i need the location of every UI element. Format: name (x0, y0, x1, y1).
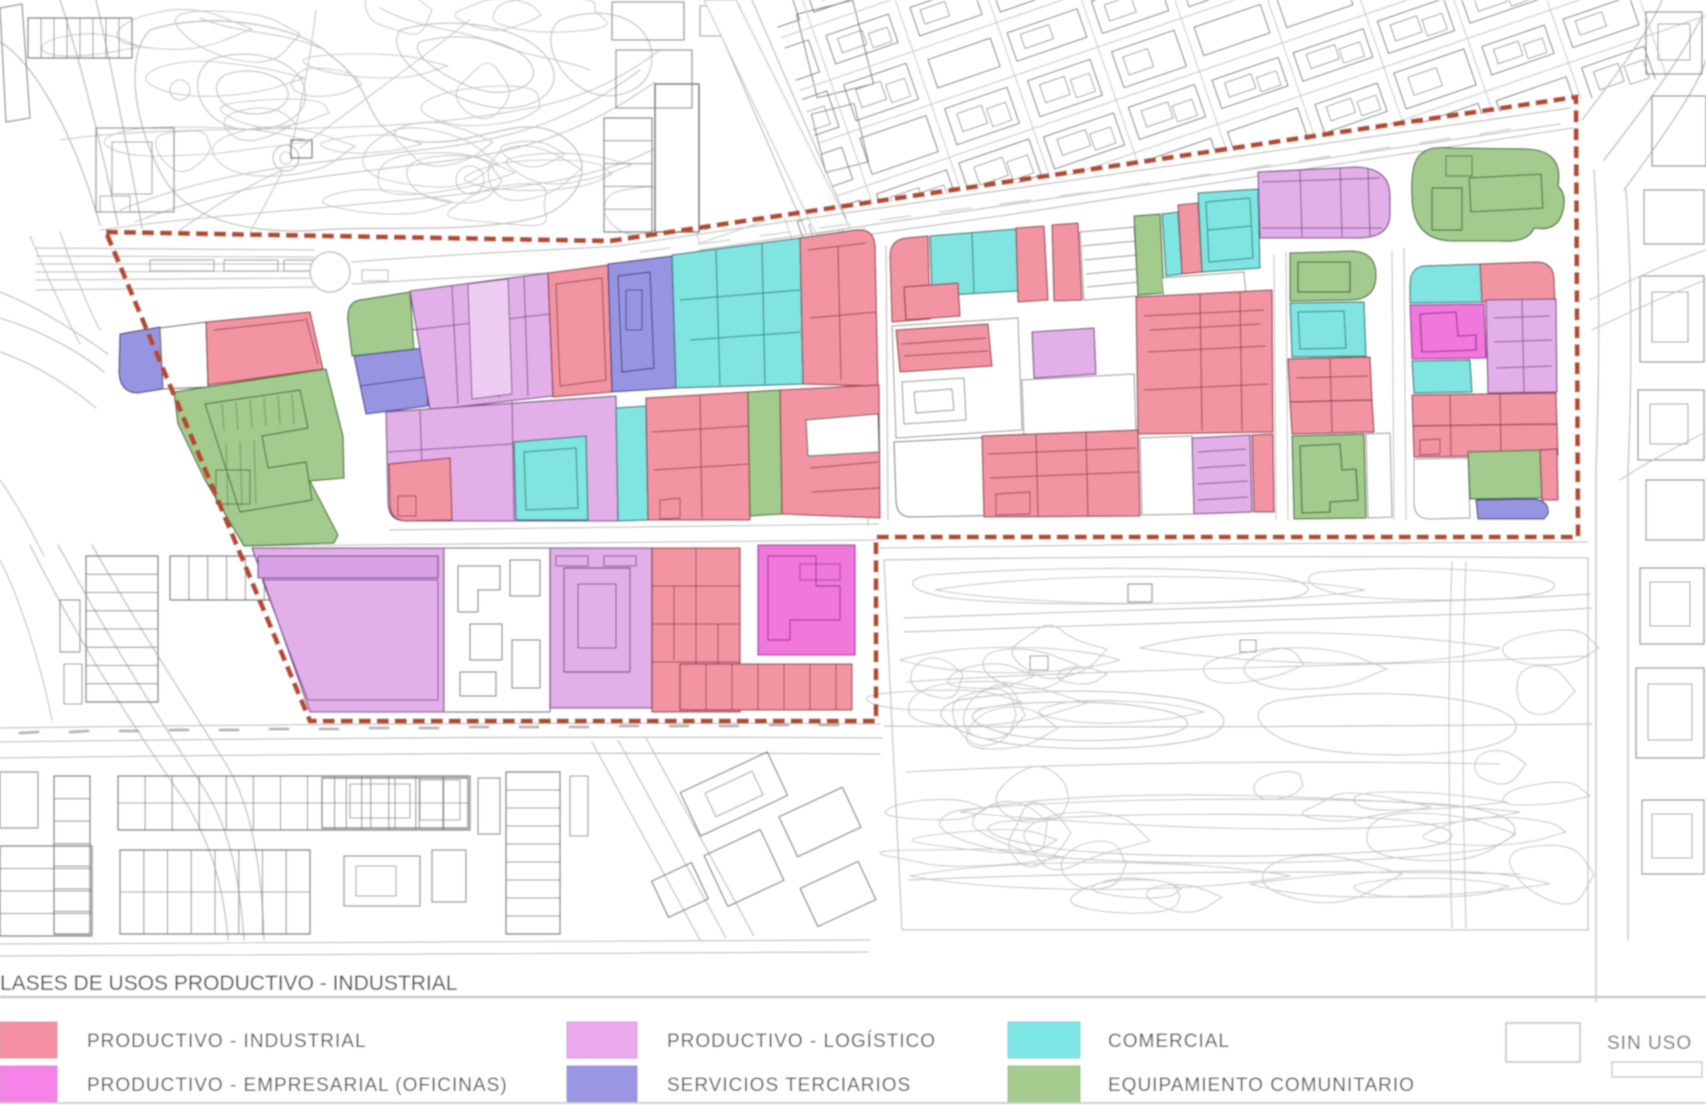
svg-text:PRODUCTIVO - INDUSTRIAL: PRODUCTIVO - INDUSTRIAL (87, 1031, 367, 1052)
svg-text:PRODUCTIVO - EMPRESARIAL (OFIC: PRODUCTIVO - EMPRESARIAL (OFICINAS) (87, 1075, 508, 1096)
svg-text:EQUIPAMIENTO COMUNITARIO: EQUIPAMIENTO COMUNITARIO (1108, 1075, 1415, 1096)
svg-text:PRODUCTIVO - LOGÍSTICO: PRODUCTIVO - LOGÍSTICO (667, 1031, 936, 1052)
svg-text:LASES DE USOS PRODUCTIVO - IND: LASES DE USOS PRODUCTIVO - INDUSTRIAL (0, 972, 457, 995)
svg-text:SERVICIOS TERCIARIOS: SERVICIOS TERCIARIOS (667, 1075, 911, 1096)
svg-text:COMERCIAL: COMERCIAL (1108, 1031, 1230, 1052)
svg-text:SIN USO: SIN USO (1607, 1033, 1692, 1054)
